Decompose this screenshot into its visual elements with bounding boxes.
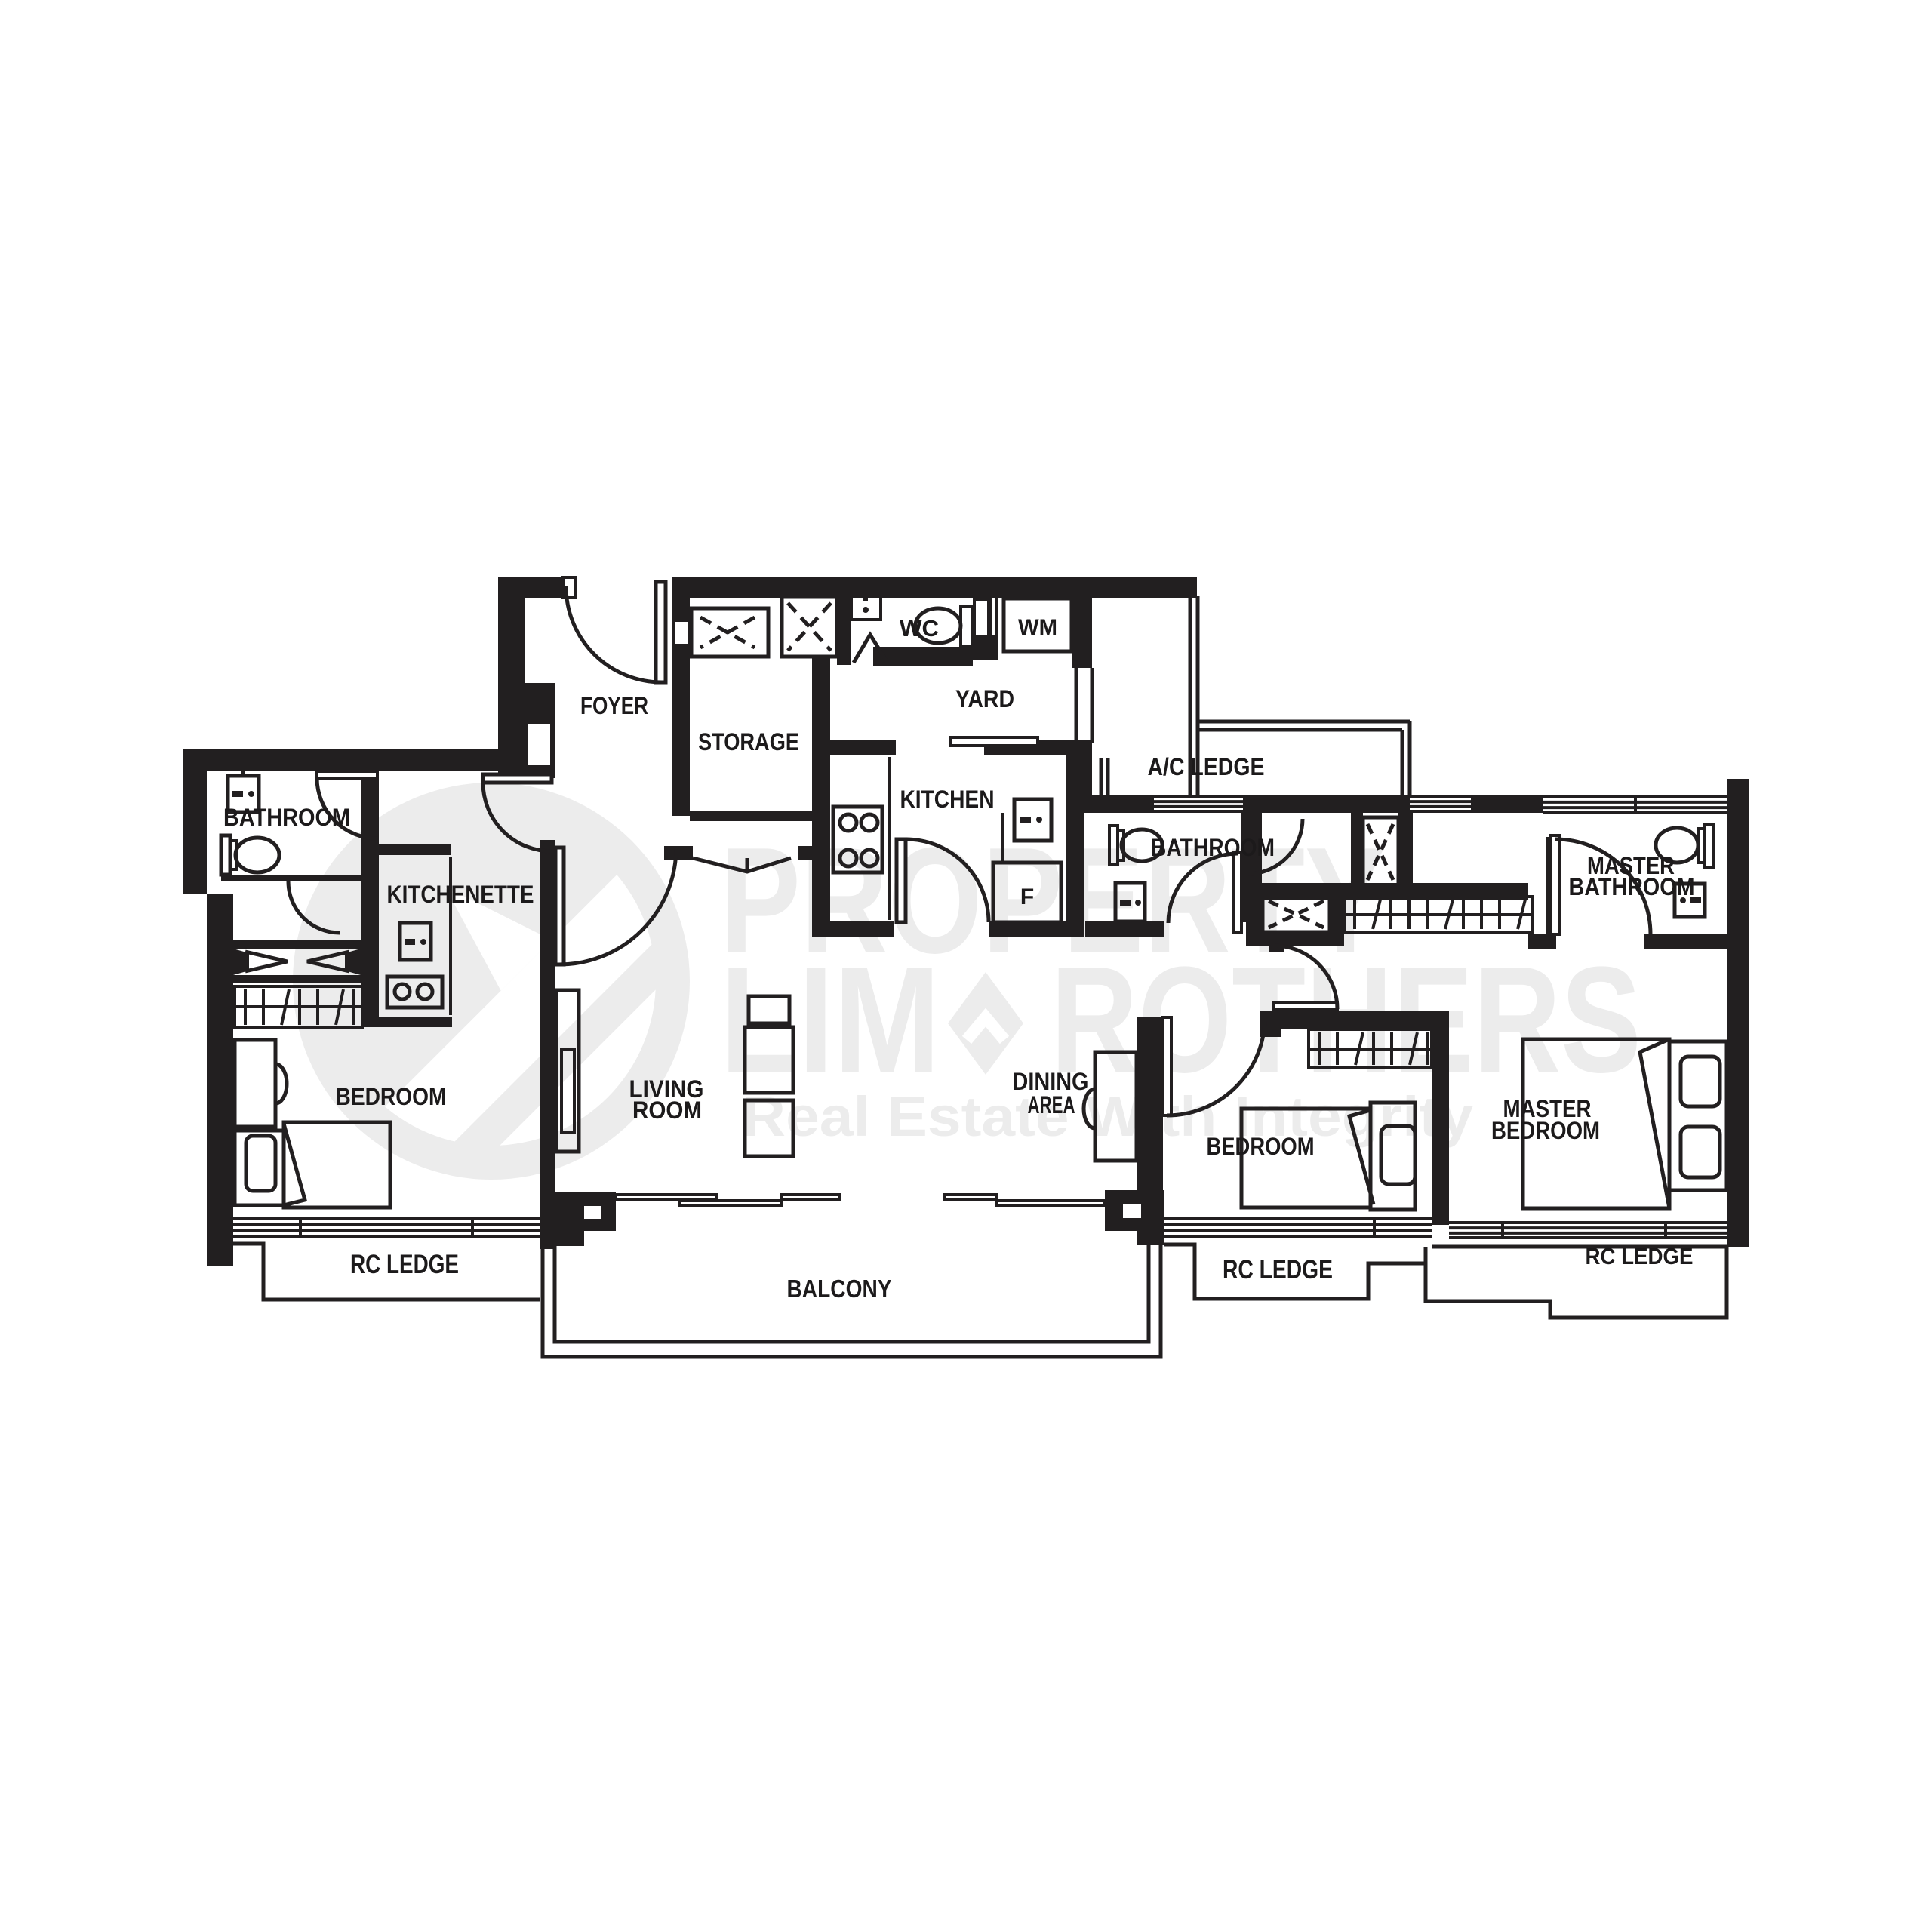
svg-text:LIM: LIM [720, 936, 940, 1104]
svg-text:WC: WC [900, 615, 939, 641]
svg-text:BEDROOM: BEDROOM [1491, 1117, 1600, 1144]
svg-text:FOYER: FOYER [580, 692, 648, 719]
svg-text:WM: WM [1018, 615, 1057, 640]
svg-text:Real Estate With Integrity: Real Estate With Integrity [742, 1085, 1473, 1148]
svg-text:RC LEDGE: RC LEDGE [1586, 1243, 1694, 1269]
svg-text:BATHROOM: BATHROOM [1151, 834, 1275, 861]
svg-text:A/C LEDGE: A/C LEDGE [1148, 753, 1265, 780]
svg-text:BEDROOM: BEDROOM [1207, 1133, 1315, 1160]
svg-text:F: F [1020, 884, 1034, 909]
svg-text:RC LEDGE: RC LEDGE [350, 1250, 459, 1279]
svg-text:BEDROOM: BEDROOM [336, 1083, 447, 1110]
svg-text:BALCONY: BALCONY [787, 1275, 892, 1303]
svg-text:ROOM: ROOM [632, 1097, 702, 1124]
svg-text:RC LEDGE: RC LEDGE [1223, 1255, 1333, 1284]
svg-text:YARD: YARD [955, 685, 1014, 712]
svg-text:KITCHEN: KITCHEN [900, 786, 995, 813]
svg-text:STORAGE: STORAGE [698, 728, 799, 755]
svg-text:BATHROOM: BATHROOM [223, 804, 350, 831]
svg-text:BATHROOM: BATHROOM [1569, 873, 1695, 900]
svg-text:KITCHENETTE: KITCHENETTE [387, 881, 534, 908]
svg-text:AREA: AREA [1028, 1091, 1075, 1118]
